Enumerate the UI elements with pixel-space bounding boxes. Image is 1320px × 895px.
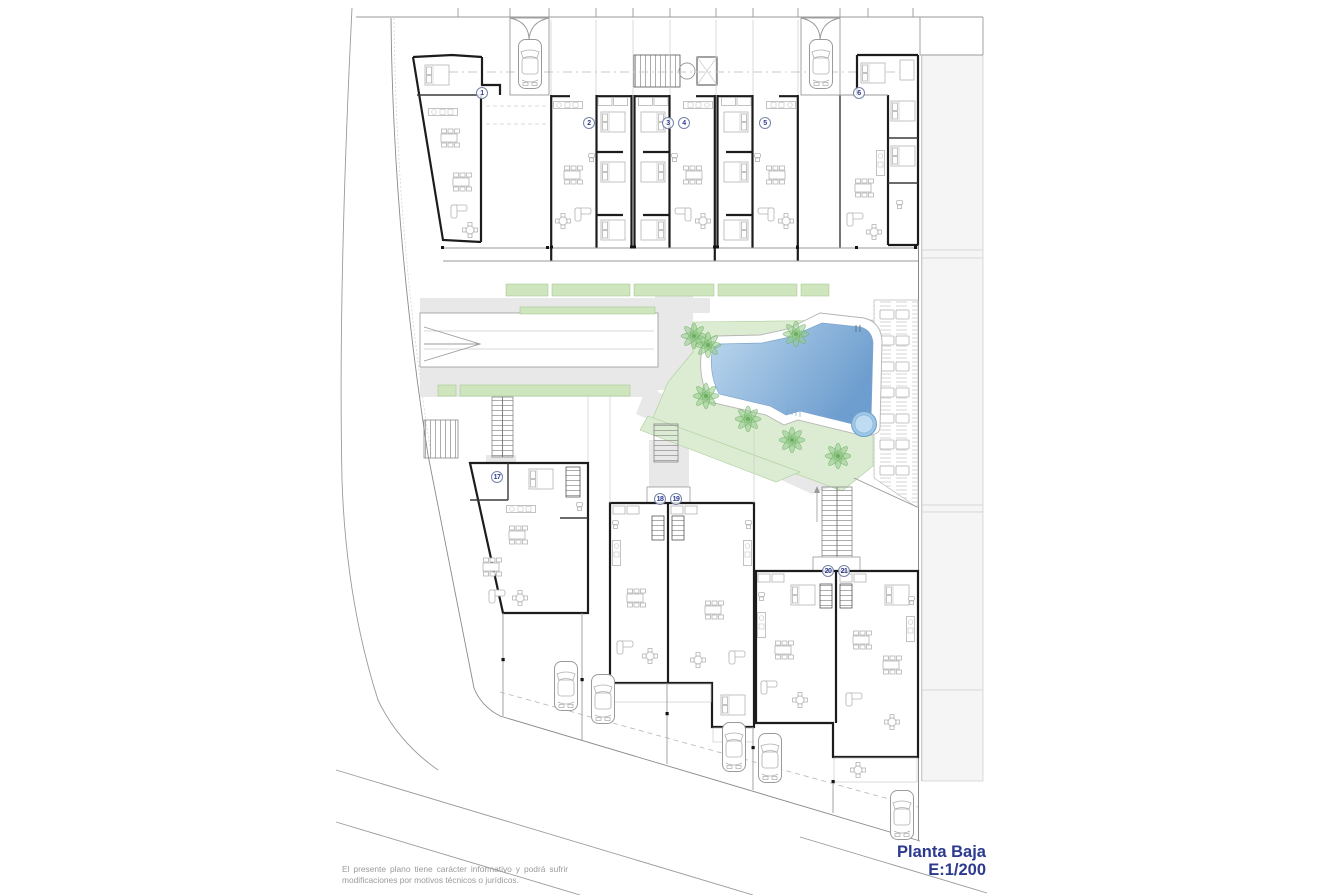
unit-module-3: [633, 95, 716, 261]
car-garage-right: [810, 40, 833, 89]
car-driveway-3: [723, 723, 746, 772]
stair-west: [424, 420, 458, 458]
unit-number-badge-5: 5: [759, 117, 771, 129]
car-driveway-5: [891, 791, 914, 840]
unit-number-badge-21: 21: [838, 565, 850, 577]
car-driveway-2: [592, 675, 615, 724]
unit-number-badge-3: 3: [662, 117, 674, 129]
car-driveway-4: [759, 734, 782, 783]
garage-ramp: [420, 313, 658, 367]
top-building-row: [413, 18, 918, 261]
unit-number-badge-2: 2: [583, 117, 595, 129]
plan-scale: E:1/200: [897, 861, 986, 879]
stair-middle: [654, 424, 678, 462]
unit-number-badge-17: 17: [491, 471, 503, 483]
building-unit-17: [470, 463, 588, 613]
unit-module-4: [716, 95, 799, 261]
stair-landing: [813, 557, 860, 571]
unit-number-badge-1: 1: [476, 87, 488, 99]
corner-unit-6: [840, 55, 918, 248]
plan-title: Planta Baja: [897, 843, 986, 861]
stair-core-top: [634, 55, 680, 87]
unit-number-badge-19: 19: [670, 493, 682, 505]
building-units-18-19: [610, 503, 754, 742]
unit-number-badge-6: 6: [853, 87, 865, 99]
right-sidewalk: [922, 55, 983, 781]
unit-number-badge-20: 20: [822, 565, 834, 577]
title-block: Planta Baja E:1/200: [897, 843, 986, 879]
disclaimer-text: El presente plano tiene carácter informa…: [342, 864, 568, 885]
floor-plan-drawing: [0, 0, 1320, 895]
car-driveway-1: [555, 662, 578, 711]
car-garage-left: [519, 40, 542, 89]
unit-number-badge-18: 18: [654, 493, 666, 505]
floor-plan-page: 1 2 3 4 5 6 17 18 19 20 21 Planta Baja E…: [0, 0, 1320, 895]
unit-number-badge-4: 4: [678, 117, 690, 129]
